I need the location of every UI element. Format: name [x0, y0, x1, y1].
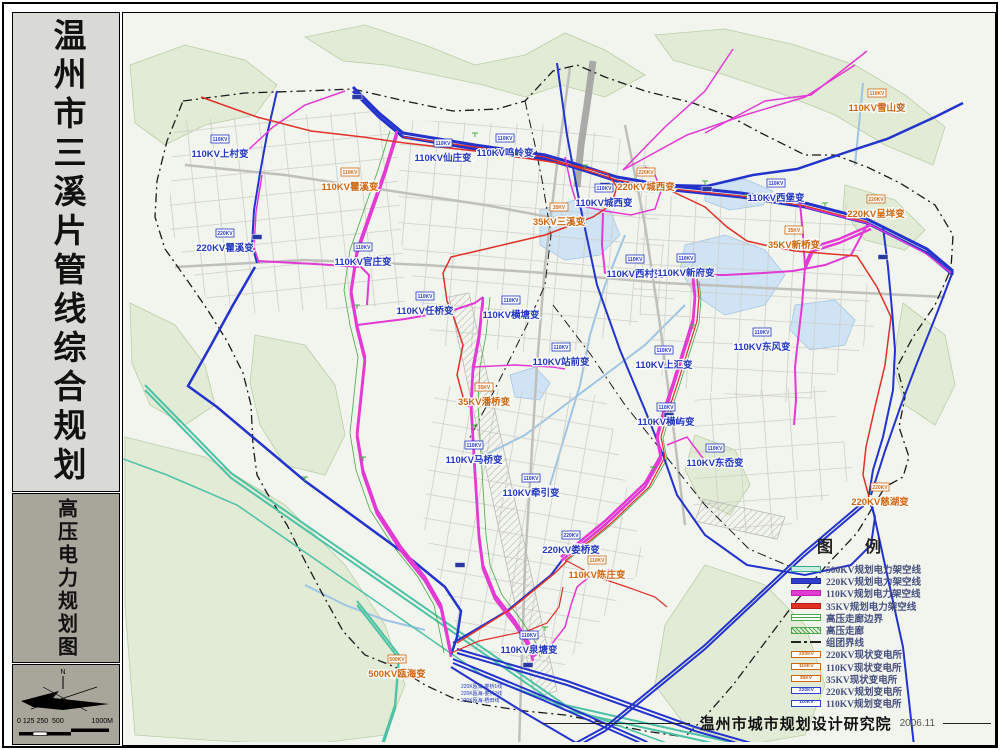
legend-swatch-line — [791, 590, 821, 596]
svg-text:110KV城西变: 110KV城西变 — [575, 197, 633, 209]
map-title-box: 温州市三溪片管线综合规划 — [12, 12, 120, 492]
legend-swatch-station: 220KV — [791, 687, 821, 694]
svg-text:110KV横塘变: 110KV横塘变 — [482, 309, 540, 321]
svg-text:110KV: 110KV — [589, 558, 605, 564]
svg-text:110KV: 110KV — [553, 345, 569, 351]
svg-text:110KV: 110KV — [596, 186, 612, 192]
legend-item: 高压走廊 — [791, 624, 996, 636]
svg-text:110KV西村变: 110KV西村变 — [606, 268, 664, 280]
map-subtitle: 高压电力规划图 — [52, 498, 81, 659]
svg-text:220KV城西变: 220KV城西变 — [617, 181, 675, 193]
legend-swatch-dashdot — [791, 641, 821, 643]
svg-text:110KV瞿溪变: 110KV瞿溪变 — [321, 181, 379, 193]
svg-text:220KV: 220KV — [563, 533, 579, 539]
svg-text:110KV: 110KV — [658, 405, 674, 411]
legend: 图 例 500KV规划电力架空线220KV规划电力架空线110KV规划电力架空线… — [791, 533, 996, 709]
svg-text:110KV东风变: 110KV东风变 — [733, 341, 791, 353]
svg-text:220K瓯海-娄桥1线: 220K瓯海-娄桥1线 — [461, 683, 502, 690]
scale-bar — [13, 727, 116, 739]
scale-end-label: 1000M — [92, 718, 113, 725]
svg-text:110KV东岙变: 110KV东岙变 — [686, 457, 744, 469]
legend-swatch-hatch — [791, 627, 821, 634]
svg-text:35KV: 35KV — [553, 205, 566, 211]
legend-swatch-line — [791, 578, 821, 584]
svg-text:220KV: 220KV — [868, 197, 884, 203]
legend-swatch-station: 110KV — [791, 663, 821, 670]
svg-text:110KV马桥变: 110KV马桥变 — [445, 454, 503, 466]
svg-text:35KV: 35KV — [788, 228, 801, 234]
svg-text:110KV泉塘变: 110KV泉塘变 — [500, 644, 558, 656]
footer-credit: 温州市城市规划设计研究院 — [700, 713, 892, 734]
page-frame: 温州市三溪片管线综合规划 高压电力规划图 N 0 125 250 500 100… — [2, 2, 998, 748]
legend-item: 110KV110KV规划变电所 — [791, 697, 996, 709]
north-arrow: N — [13, 665, 116, 715]
svg-text:500KV: 500KV — [389, 657, 405, 663]
svg-text:35KV: 35KV — [478, 385, 491, 391]
svg-text:110KV官庄变: 110KV官庄变 — [334, 256, 392, 268]
svg-text:110KV西堡变: 110KV西堡变 — [747, 192, 805, 204]
svg-text:110KV: 110KV — [417, 294, 433, 300]
svg-text:110KV: 110KV — [503, 298, 519, 304]
svg-text:110KV: 110KV — [466, 443, 482, 449]
legend-item: 35KV规划电力架空线 — [791, 600, 996, 612]
svg-text:220KV: 220KV — [638, 170, 654, 176]
svg-text:110KV鸣岭变: 110KV鸣岭变 — [476, 147, 534, 159]
svg-text:35KV三溪变: 35KV三溪变 — [533, 216, 586, 228]
map-subtitle-box: 高压电力规划图 — [12, 493, 120, 663]
map-title: 温州市三溪片管线综合规划 — [42, 18, 90, 486]
svg-text:220KV: 220KV — [217, 231, 233, 237]
svg-text:110KV任桥变: 110KV任桥变 — [396, 305, 454, 317]
svg-text:110KV: 110KV — [212, 137, 228, 143]
legend-swatch-station: 110KV — [791, 700, 821, 707]
legend-swatch-station: 220KV — [791, 651, 821, 658]
svg-text:110KV: 110KV — [627, 257, 643, 263]
map-canvas: 110KV110KV上村变110KV110KV瞿溪变220KV220KV瞿溪变1… — [122, 12, 996, 746]
svg-text:110KV: 110KV — [521, 633, 537, 639]
scale-ticks: 0 125 250 500 — [17, 718, 64, 725]
svg-text:35KV潘桥变: 35KV潘桥变 — [458, 396, 511, 408]
sidebar: 温州市三溪片管线综合规划 高压电力规划图 N 0 125 250 500 100… — [12, 12, 120, 746]
svg-text:110KV上村变: 110KV上村变 — [191, 148, 249, 160]
svg-text:220KV呈垟变: 220KV呈垟变 — [847, 208, 905, 220]
svg-text:110KV: 110KV — [435, 141, 451, 147]
svg-text:110KV: 110KV — [869, 91, 885, 97]
svg-text:220KV慈湖变: 220KV慈湖变 — [851, 496, 909, 508]
legend-swatch-line — [791, 603, 821, 609]
svg-text:220K瓯海-娄桥2线: 220K瓯海-娄桥2线 — [461, 690, 502, 697]
svg-text:220KV娄桥变: 220KV娄桥变 — [542, 544, 600, 556]
svg-text:110KV仙庄变: 110KV仙庄变 — [414, 152, 472, 164]
svg-text:110KV: 110KV — [342, 170, 358, 176]
svg-text:110KV横屿变: 110KV横屿变 — [637, 416, 695, 428]
legend-rows: 500KV规划电力架空线220KV规划电力架空线110KV规划电力架空线35KV… — [791, 563, 996, 709]
footer-rule-right — [943, 723, 991, 724]
svg-text:110KV: 110KV — [707, 446, 723, 452]
svg-text:110KV陈庄变: 110KV陈庄变 — [568, 569, 626, 581]
svg-text:110KV: 110KV — [523, 476, 539, 482]
svg-text:110KV: 110KV — [768, 181, 784, 187]
svg-text:110KV站前变: 110KV站前变 — [532, 356, 590, 368]
compass-glyph — [21, 691, 109, 710]
legend-swatch-station: 35KV — [791, 675, 821, 682]
scale-box: N 0 125 250 500 1000M — [12, 664, 120, 745]
svg-text:110KV: 110KV — [754, 330, 770, 336]
svg-text:35KV新桥变: 35KV新桥变 — [768, 239, 821, 251]
svg-text:220KV: 220KV — [872, 485, 888, 491]
svg-text:110KV: 110KV — [656, 348, 672, 354]
svg-text:110KV: 110KV — [678, 256, 694, 262]
svg-text:110KV: 110KV — [355, 245, 371, 251]
svg-text:110KV上汇变: 110KV上汇变 — [635, 359, 693, 371]
svg-text:220KV瞿溪变: 220KV瞿溪变 — [196, 242, 254, 254]
north-label: N — [60, 669, 65, 676]
svg-text:110KV: 110KV — [497, 136, 513, 142]
legend-title: 图 例 — [817, 533, 996, 557]
legend-label: 110KV规划变电所 — [826, 696, 901, 710]
legend-swatch-box — [791, 614, 821, 621]
footer: 温州市城市规划设计研究院 2006.11 — [543, 713, 991, 734]
svg-text:110KV牵引变: 110KV牵引变 — [502, 487, 560, 499]
svg-text:110KV新府变: 110KV新府变 — [657, 267, 715, 279]
svg-text:110KV雪山变: 110KV雪山变 — [848, 102, 906, 114]
legend-swatch-line — [791, 566, 821, 572]
footer-date: 2006.11 — [900, 718, 935, 729]
footer-rule-left — [543, 723, 690, 724]
legend-item: 高压走廊边界 — [791, 612, 996, 624]
svg-text:500KV瓯海变: 500KV瓯海变 — [368, 668, 426, 680]
svg-text:220K瓯海-梧田线: 220K瓯海-梧田线 — [461, 697, 499, 704]
